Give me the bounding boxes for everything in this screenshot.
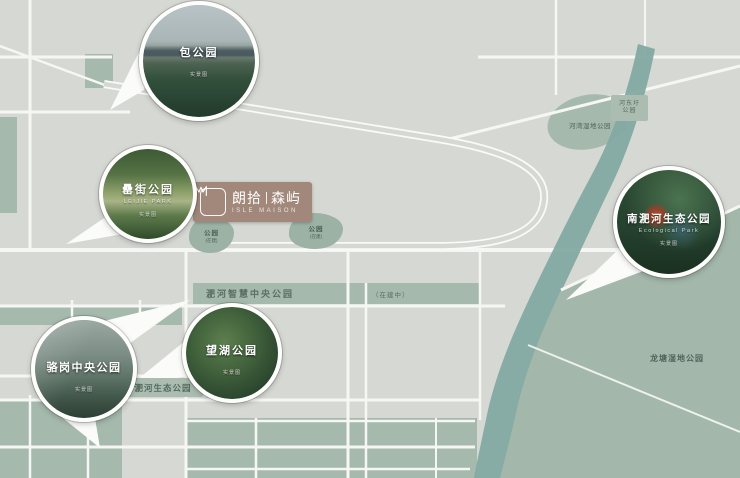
nanfeihe-park-name-en: Ecological Park xyxy=(639,228,699,234)
callout-bao-park: 包公园 实景图 xyxy=(139,1,259,121)
nanfeihe-park-name: 南淝河生态公园 xyxy=(627,211,711,226)
wanghu-park-name: 望湖公园 xyxy=(206,342,258,358)
loop-park-right-status: (在建) xyxy=(310,234,322,240)
loop-park-right-name: 公园 xyxy=(309,223,324,233)
wanghu-park-caption: 实景图 xyxy=(223,369,241,376)
callout-wanghu-park: 望湖公园 实景图 xyxy=(182,303,282,403)
loop-park-left-name: 公园 xyxy=(204,227,219,237)
project-name-right: 森屿 xyxy=(271,191,301,206)
callout-luogang-central-park: 骆岗中央公园 实景图 xyxy=(31,316,137,422)
leijie-park-caption: 实景图 xyxy=(139,211,157,218)
project-name: 朗拾 森屿 xyxy=(232,191,301,206)
hedong-park-line2: 公园 xyxy=(622,108,636,115)
location-map: 淝河智慧中央公园 （在建中） 龙塘湿地公园 河湾湿地公园 淝河生态公园 河东圩 … xyxy=(0,0,740,478)
loop-park-left-status: (在建) xyxy=(206,238,218,244)
bao-park-name: 包公园 xyxy=(180,44,219,60)
label-longtang-wetland-park: 龙塘湿地公园 xyxy=(650,353,704,364)
leijie-park-name-en: LEIJIE PARK xyxy=(124,199,173,205)
leijie-park-name: 罍街公园 xyxy=(122,181,174,197)
hedong-park-line1: 河东圩 xyxy=(619,101,640,108)
nanfeihe-park-caption: 实景图 xyxy=(660,240,678,247)
luogang-park-name: 骆岗中央公园 xyxy=(47,359,122,375)
callout-nanfeihe-eco-park: 南淝河生态公园 Ecological Park 实景图 xyxy=(613,166,725,278)
label-wetland-blob-park: 河湾湿地公园 xyxy=(560,120,620,130)
project-logo-plaque: 朗拾 森屿 ISLE MAISON xyxy=(193,182,312,222)
callout-leijie-park: 罍街公园 LEIJIE PARK 实景图 xyxy=(99,145,197,243)
label-under-construction: （在建中） xyxy=(372,289,410,299)
label-smart-central-park: 淝河智慧中央公园 xyxy=(206,287,294,300)
project-name-left: 朗拾 xyxy=(232,191,262,206)
bao-park-caption: 实景图 xyxy=(190,71,208,78)
label-box-hedong-park: 河东圩 公园 xyxy=(611,95,648,121)
name-divider xyxy=(266,192,267,204)
luogang-park-caption: 实景图 xyxy=(75,386,93,393)
feihe-eco-park-text: 淝河生态公园 xyxy=(134,382,191,394)
project-name-en: ISLE MAISON xyxy=(232,208,298,214)
brand-monogram-icon xyxy=(200,188,226,216)
